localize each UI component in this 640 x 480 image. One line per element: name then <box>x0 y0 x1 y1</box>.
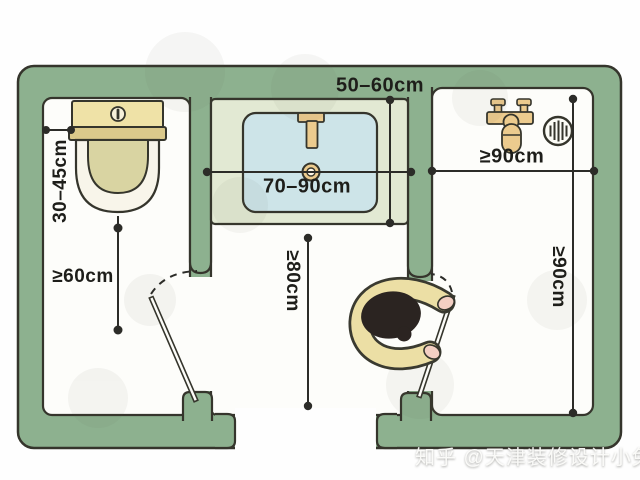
left-door-jamb <box>183 392 212 421</box>
faucet-stem <box>307 121 318 148</box>
label-vanity-width: 70–90cm <box>263 176 351 199</box>
toilet-seat-hinge <box>69 127 166 140</box>
label-toilet-front-clearance: ≥60cm <box>52 266 114 288</box>
toilet <box>69 101 166 212</box>
left-door-opening <box>185 277 214 391</box>
toilet-bowl <box>88 140 148 193</box>
left-partition-wall <box>190 97 211 273</box>
bottom-wall-left-end <box>215 414 235 448</box>
flush-button-slot <box>117 109 120 120</box>
bottom-wall-right-end <box>377 414 397 448</box>
floor-drain <box>544 117 572 145</box>
bathroom-floor-plan: 50–60cm 30–45cm 70–90cm ≥90cm ≥60cm ≥80c… <box>0 0 640 480</box>
label-toilet-side-clearance: 30–45cm <box>50 139 72 223</box>
entrance-opening <box>235 408 376 456</box>
label-shower-depth: ≥90cm <box>547 246 569 308</box>
zhihu-watermark: 知乎 @天津装修设计小兔 <box>415 441 640 470</box>
person-hair-bun <box>397 327 412 342</box>
floor-plan-drawing <box>0 0 640 480</box>
label-counter-depth: 50–60cm <box>336 75 424 98</box>
label-passage-width: ≥80cm <box>281 250 303 312</box>
label-shower-entry-width: ≥90cm <box>480 146 545 169</box>
right-partition-wall <box>408 87 432 277</box>
